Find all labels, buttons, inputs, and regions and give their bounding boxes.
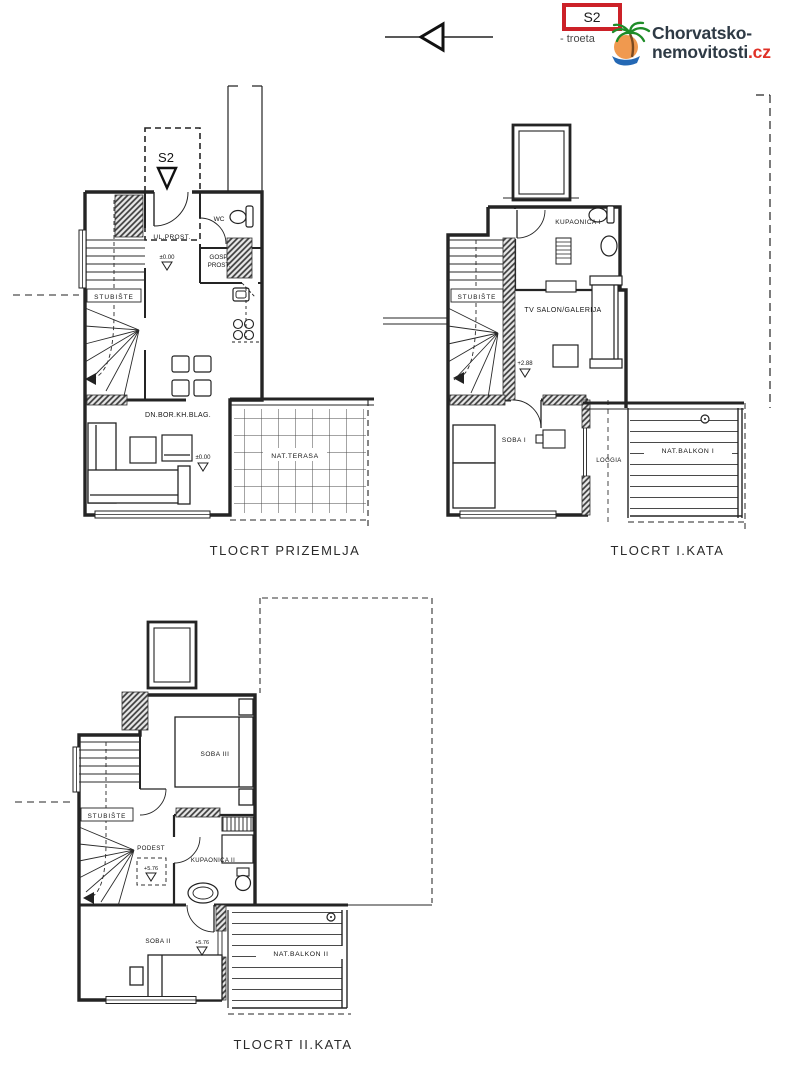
- dining-set: [172, 356, 211, 396]
- terrace-label: NAT.TERASA: [271, 453, 318, 460]
- bathroom-fixtures: [556, 206, 617, 264]
- level-marker-icon: [197, 947, 207, 955]
- stairs-label-box: STUBIŠTE: [87, 289, 141, 302]
- living-level: ±0.00: [196, 455, 212, 461]
- balcony-label: NAT.BALKON II: [273, 951, 328, 958]
- utility-label-line1: GOSP.: [209, 254, 228, 261]
- entrance-label: UL.PROST.: [153, 234, 190, 241]
- stairs-label: STUBIŠTE: [94, 292, 134, 301]
- kitchen-fixtures: [232, 288, 262, 342]
- salon-label: TV SALON/GALERIJA: [524, 307, 601, 314]
- landing-label: PODEST: [137, 845, 165, 852]
- coffee-table: [130, 437, 156, 463]
- bathroom-label: KUPAONICA I: [555, 219, 600, 226]
- stairs-label-box: STUBIŠTE: [81, 808, 133, 821]
- balcony-label: NAT.BALKON I: [662, 448, 715, 455]
- caption-ground-floor: TLOCRT PRIZEMLJA: [180, 543, 390, 558]
- logo-line2: nemovitosti.cz: [652, 43, 771, 62]
- level-marker-icon: [146, 873, 156, 881]
- chair: [546, 281, 576, 292]
- salon-level: +2.88: [517, 361, 533, 367]
- stairs-label-box: STUBIŠTE: [451, 289, 503, 302]
- site-logo-text: Chorvatsko- nemovitosti.cz: [652, 24, 771, 62]
- stair-direction-arrow: [83, 892, 94, 904]
- loggia-label: LOGGIA: [596, 458, 621, 464]
- room-level: +5.76: [195, 940, 209, 946]
- entrance-level: ±0.00: [160, 255, 176, 261]
- armchair: [162, 435, 192, 461]
- north-arrow-icon: [385, 20, 495, 54]
- staircase: [79, 742, 140, 906]
- caption-second-floor: TLOCRT II.KATA: [198, 1037, 388, 1052]
- wardrobe: [453, 425, 495, 508]
- stairs-label: STUBIŠTE: [458, 292, 497, 301]
- desk: [536, 430, 565, 448]
- staircase: [448, 240, 503, 398]
- entrance-arrow-icon: [158, 168, 176, 188]
- ground-floor-plan: STUBIŠTE NAT.TERASA S2 UL.PROST. ±0.00 W…: [6, 78, 378, 556]
- utility-label-line2: PROST.: [208, 262, 231, 269]
- sofa: [590, 276, 622, 368]
- bathroom-label: KUPAONICA II: [191, 858, 235, 864]
- unit-marker-label: S2: [158, 150, 174, 165]
- first-floor-plan: STUBIŠTE NAT.BALKON I KUPAONICA I TV SA: [376, 78, 774, 556]
- side-table: [553, 345, 578, 367]
- unit-badge-note: - troeta: [560, 33, 595, 45]
- floorplan-sheet: { "header": { "badge": { "label": "S2", …: [0, 0, 788, 1068]
- landing-level: +5.76: [144, 866, 158, 872]
- stairs-label: STUBIŠTE: [88, 811, 127, 820]
- wc-toilet: [230, 206, 253, 227]
- logo-line1: Chorvatsko-: [652, 24, 771, 43]
- stair-direction-arrow: [453, 372, 464, 384]
- room-top-label: SOBA III: [201, 751, 230, 758]
- level-marker-icon: [162, 262, 172, 270]
- bed: [130, 955, 222, 1000]
- level-marker-icon: [520, 369, 530, 377]
- caption-first-floor: TLOCRT I.KATA: [580, 543, 755, 558]
- room-bottom-label: SOBA II: [145, 938, 170, 945]
- second-floor-plan: STUBIŠTE NAT.BALKON II SOBA III PODEST +…: [6, 592, 446, 1040]
- level-marker-icon: [198, 463, 208, 471]
- wc-label: WC: [214, 216, 225, 223]
- terrace: NAT.TERASA: [230, 399, 374, 526]
- logo-tld: .cz: [748, 42, 771, 62]
- balcony: NAT.BALKON I: [583, 403, 745, 533]
- room-label: SOBA I: [502, 437, 526, 444]
- balcony: NAT.BALKON II: [228, 910, 351, 1014]
- living-room-label: DN.BOR.KH.BLAG.: [145, 412, 211, 419]
- palm-logo-icon: [610, 20, 656, 68]
